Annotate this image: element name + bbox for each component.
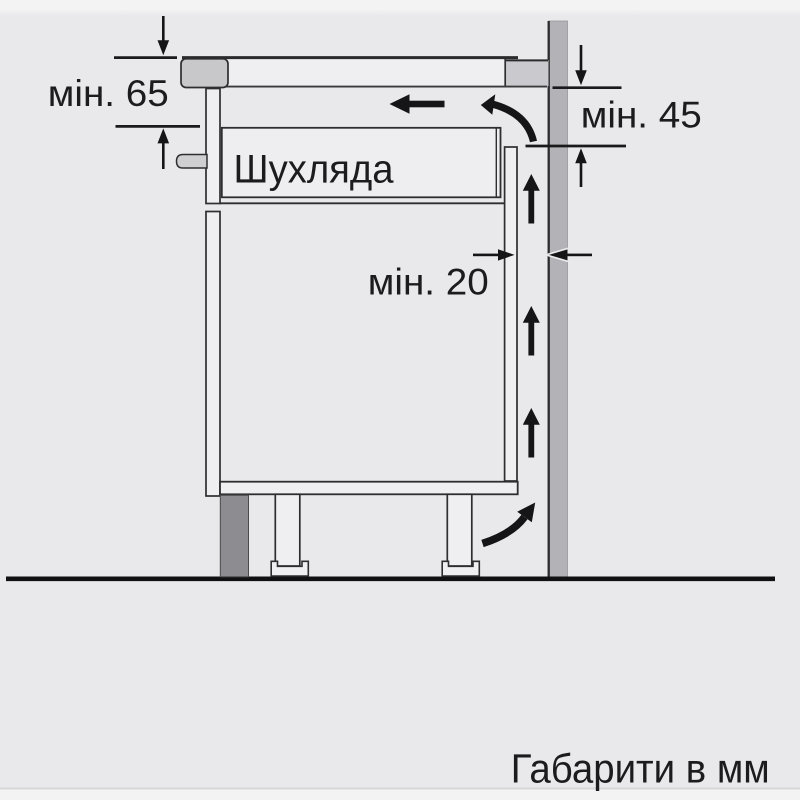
svg-text:мін. 20: мін. 20 — [368, 261, 489, 303]
svg-text:мін. 45: мін. 45 — [581, 94, 702, 136]
svg-text:мін. 65: мін. 65 — [48, 72, 169, 114]
svg-text:Габарити в мм: Габарити в мм — [511, 746, 770, 792]
svg-text:Шухляда: Шухляда — [234, 148, 395, 192]
